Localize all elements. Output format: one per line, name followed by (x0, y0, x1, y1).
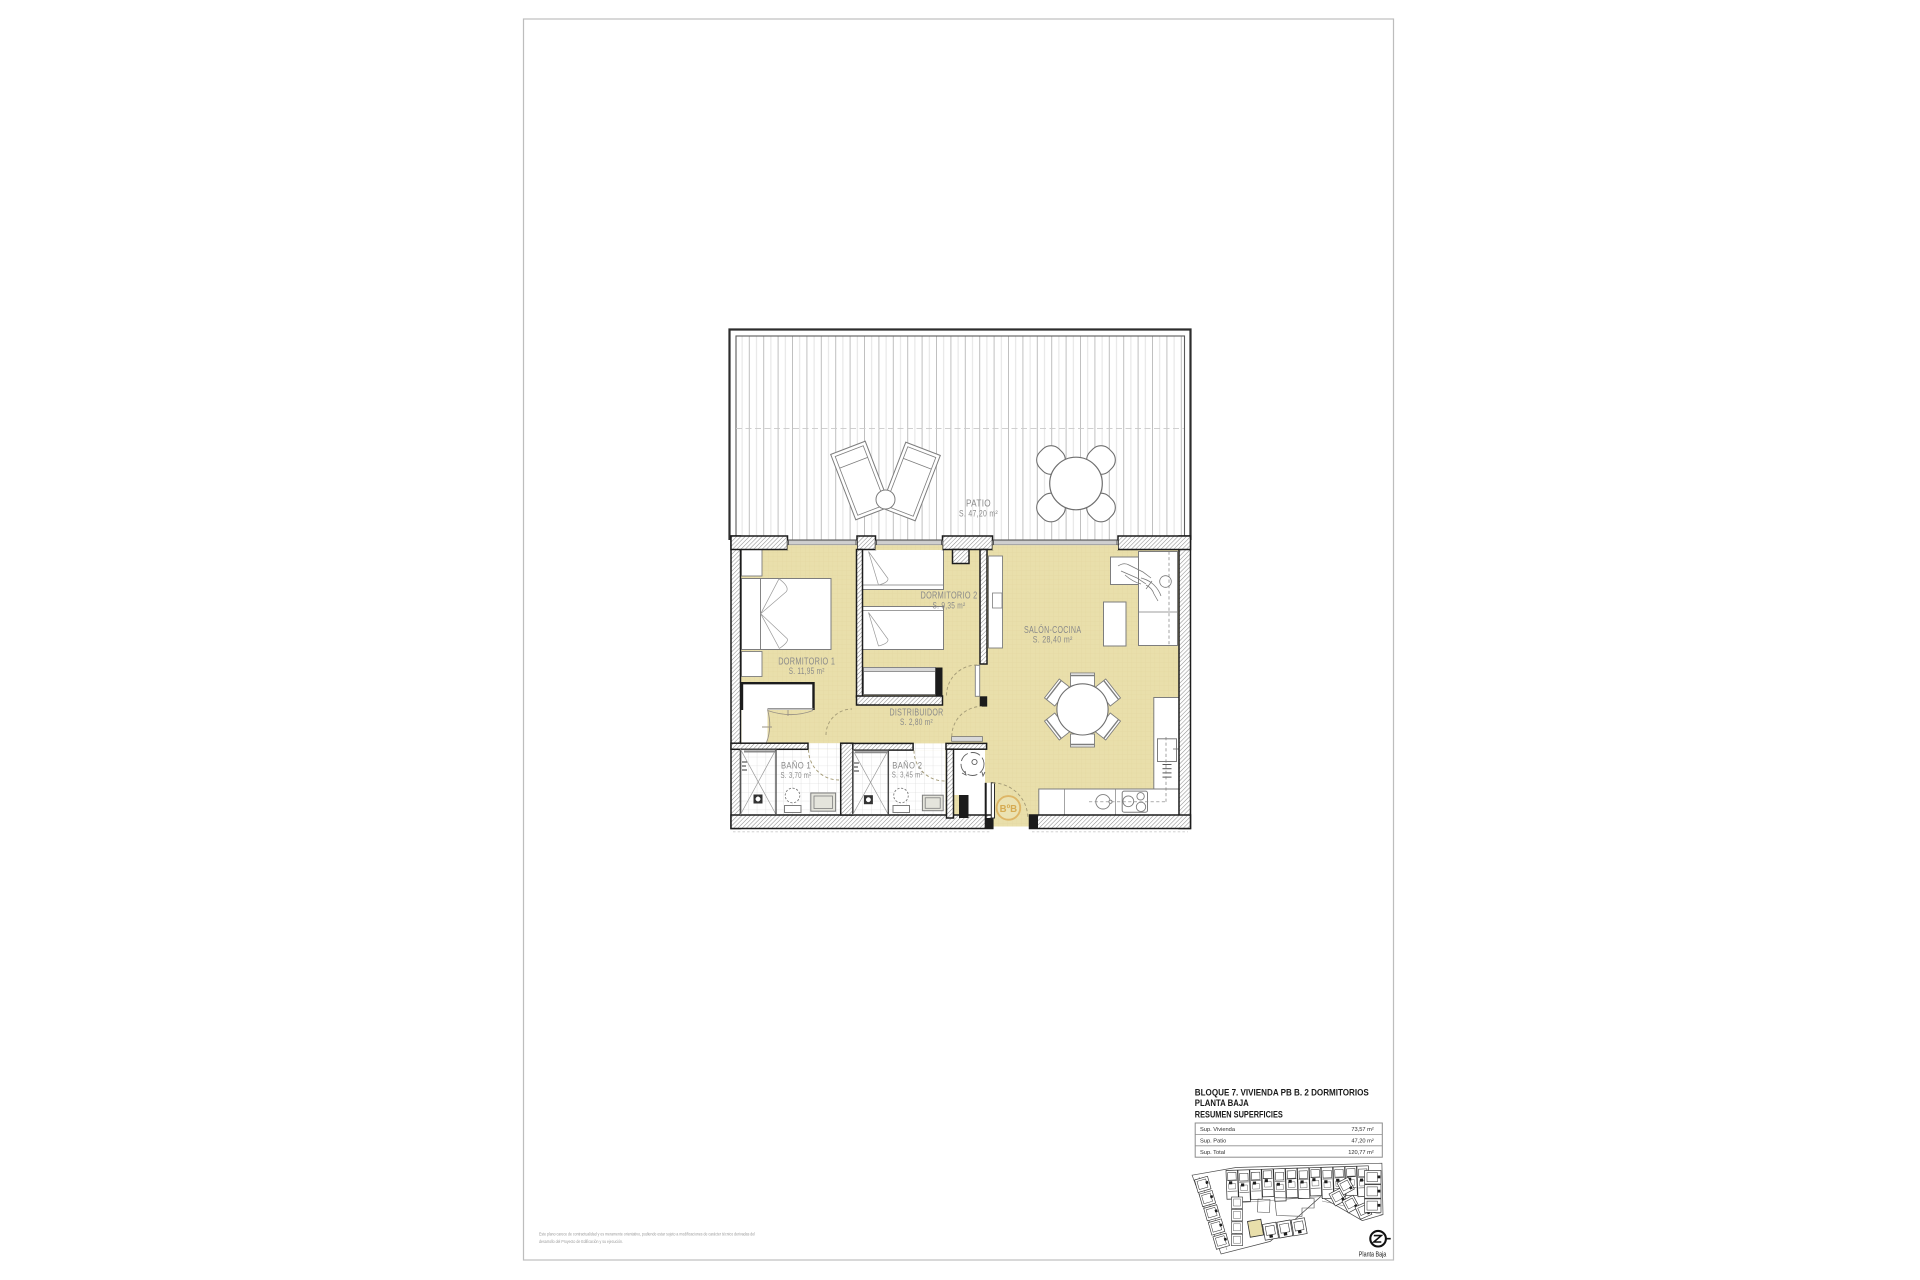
svg-text:BºB: BºB (1000, 804, 1018, 815)
svg-text:S. 2,80 m²: S. 2,80 m² (900, 717, 933, 727)
svg-text:S. 11,95 m²: S. 11,95 m² (789, 666, 825, 676)
svg-text:Sup. Patio: Sup. Patio (1200, 1139, 1226, 1145)
svg-text:RESUMEN SUPERFICIES: RESUMEN SUPERFICIES (1195, 1109, 1283, 1119)
svg-text:73,57 m²: 73,57 m² (1351, 1127, 1374, 1133)
svg-text:PLANTA BAJA: PLANTA BAJA (1195, 1098, 1249, 1108)
svg-text:120,77 m²: 120,77 m² (1348, 1150, 1374, 1156)
svg-text:Este plano carece de contractu: Este plano carece de contractualidad y e… (539, 1232, 755, 1237)
svg-text:Planta Baja: Planta Baja (1359, 1251, 1387, 1258)
svg-text:Sup. Total: Sup. Total (1200, 1150, 1225, 1156)
svg-text:S. 47,20 m²: S. 47,20 m² (959, 508, 998, 518)
svg-text:desarrollo del Proyecto de Edi: desarrollo del Proyecto de Edificación y… (539, 1239, 623, 1244)
svg-text:S. 3,70 m²: S. 3,70 m² (781, 770, 812, 780)
svg-text:Sup. Vivienda: Sup. Vivienda (1200, 1127, 1236, 1133)
svg-text:BLOQUE 7. VIVIENDA PB B. 2 DOR: BLOQUE 7. VIVIENDA PB B. 2 DORMITORIOS (1195, 1087, 1369, 1097)
svg-text:S. 3,45 m²: S. 3,45 m² (892, 769, 923, 779)
svg-text:S. 28,40 m²: S. 28,40 m² (1033, 635, 1073, 645)
svg-text:S. 9,35 m²: S. 9,35 m² (933, 600, 966, 610)
svg-text:47,20 m²: 47,20 m² (1351, 1139, 1374, 1145)
